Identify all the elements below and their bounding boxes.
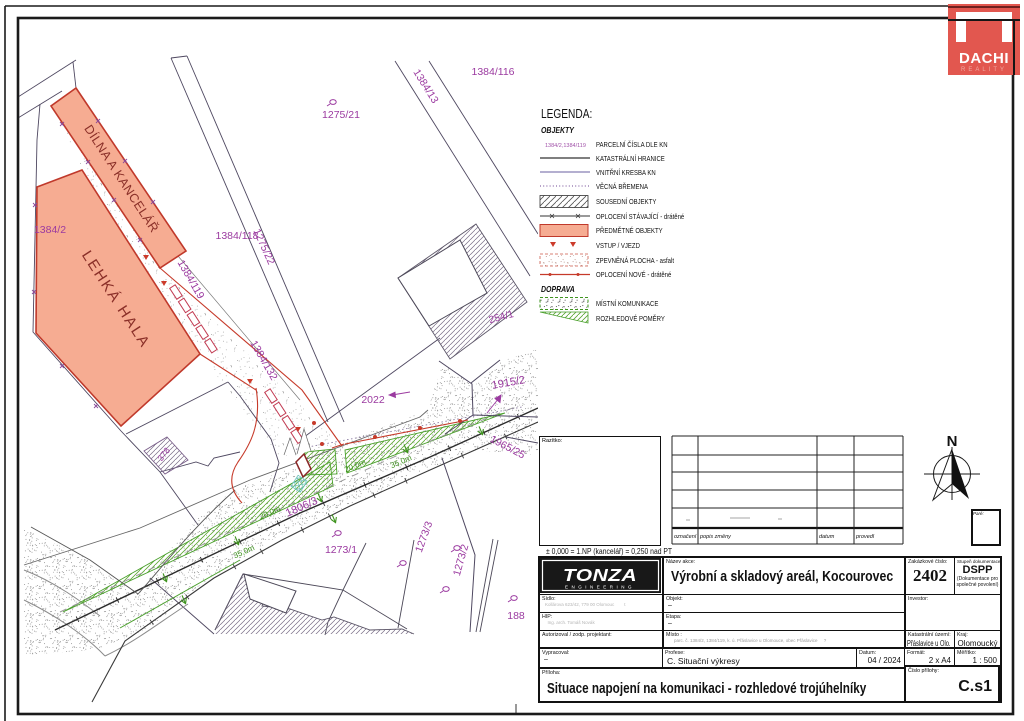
svg-text:2022: 2022: [361, 394, 385, 406]
svg-text:popis změny: popis změny: [699, 534, 732, 540]
svg-text:TONZA: TONZA: [563, 565, 637, 585]
svg-text:1273/3: 1273/3: [413, 520, 435, 554]
svg-text:1275/21: 1275/21: [322, 109, 360, 121]
svg-text:1384/2: 1384/2: [34, 224, 66, 236]
svg-text:provedl: provedl: [855, 534, 875, 540]
svg-text:N: N: [947, 433, 958, 450]
svg-text:označení: označení: [674, 534, 697, 540]
svg-text:ENGINEERING: ENGINEERING: [565, 585, 635, 590]
svg-text:datum: datum: [819, 534, 835, 540]
svg-text:1275/22: 1275/22: [251, 227, 277, 267]
svg-text:1273/1: 1273/1: [325, 544, 357, 556]
svg-text:188: 188: [507, 610, 525, 622]
svg-text:1384/2,1384/119: 1384/2,1384/119: [545, 143, 586, 149]
svg-text:1384/116: 1384/116: [471, 66, 514, 78]
